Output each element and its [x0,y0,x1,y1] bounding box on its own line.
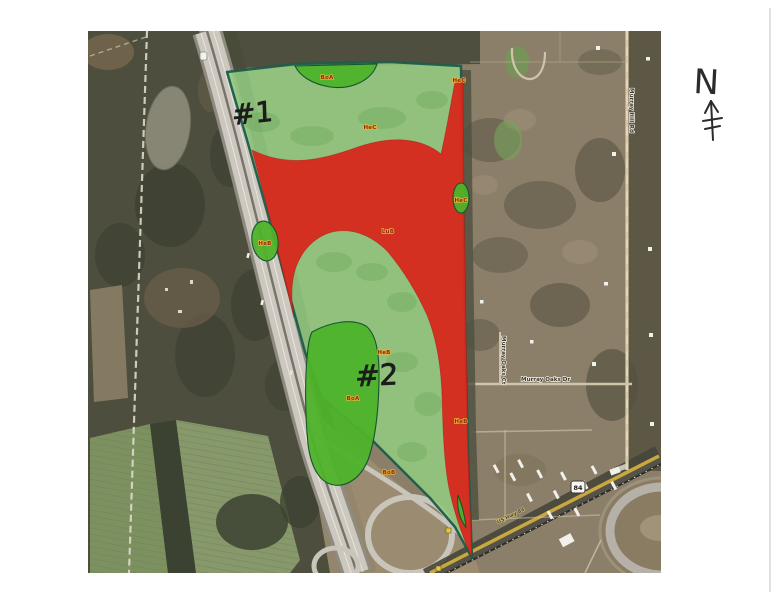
parcel-2-label: #2 [355,357,398,393]
soil-code-label: HeC [455,198,468,204]
road-label-murray-hill-rd: Murray Hill Rd [628,88,634,133]
soil-code-label: HeB [377,350,390,356]
scanned-map-page: BoA HeC HeC HeB LuB HeC HeB BoA BoB HeB … [0,0,775,600]
aerial-parcel-map: BoA HeC HeC HeB LuB HeC HeB BoA BoB HeB … [0,0,775,600]
soil-code-label: LuB [382,229,394,235]
parcel-1-label: #1 [231,95,273,132]
soil-code-label: BoA [347,396,360,402]
highway-shield-84: 84 [571,481,585,493]
north-arrow: N [693,62,722,140]
homestead-clearing [144,268,220,328]
road-label-murray-oaks-dr: Murray Oaks Dr [521,377,570,383]
aerial-photo: BoA HeC HeC HeB LuB HeC HeB BoA BoB HeB … [82,30,724,584]
compass-arrow-icon [703,101,722,140]
road-label-murray-oaks-ct: Murray Oaks Ct [500,336,506,385]
soil-code-label: BoA [321,75,334,81]
soil-code-label: HeB [258,241,271,247]
soil-code-label: HeB [454,419,467,425]
soil-code-label: BoB [383,470,396,476]
soil-code-label: HeC [453,78,466,84]
route-shield-marker [200,52,207,60]
compass-n-label: N [693,62,720,103]
highway-shield-number: 84 [573,484,583,492]
soil-code-label: HeC [364,125,377,131]
